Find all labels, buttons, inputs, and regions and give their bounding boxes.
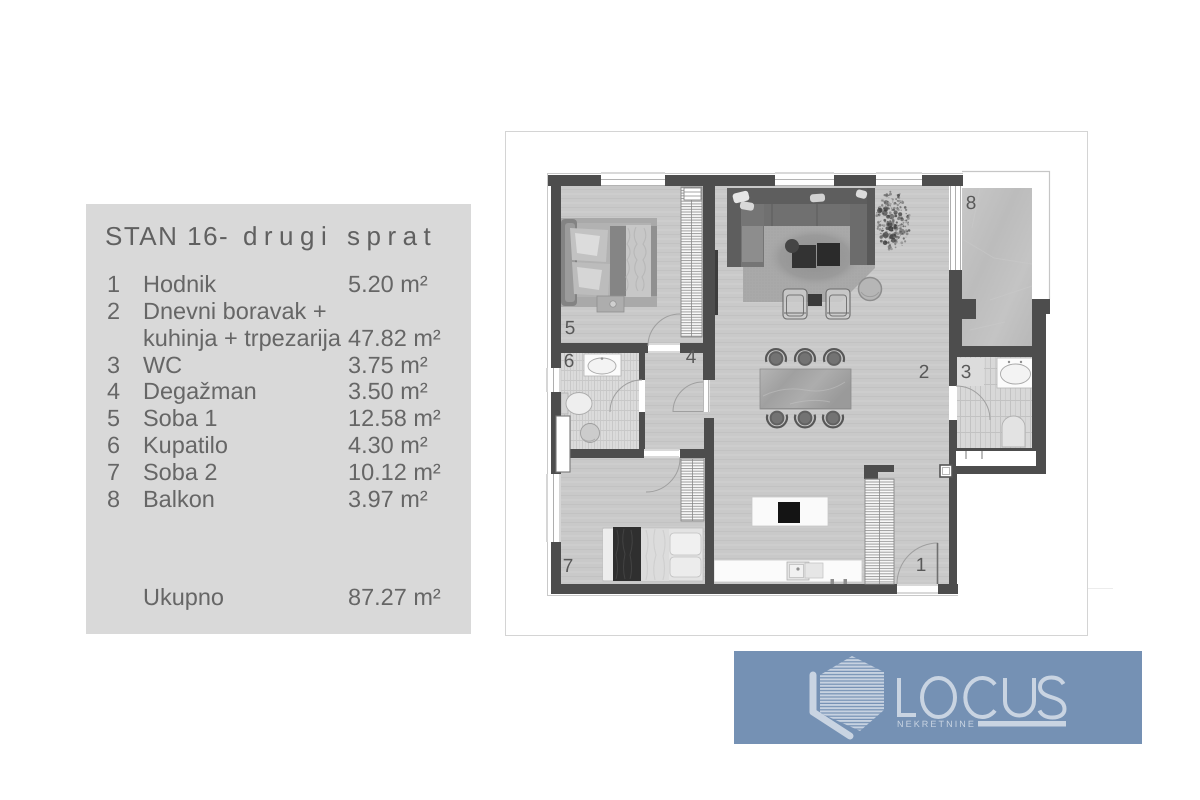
svg-text:7: 7: [563, 556, 574, 577]
svg-text:5: 5: [565, 318, 576, 339]
svg-text:1: 1: [916, 555, 927, 576]
svg-text:4: 4: [686, 347, 697, 368]
svg-text:8: 8: [966, 193, 977, 214]
svg-text:3: 3: [961, 362, 972, 383]
svg-text:NEKRETNINE: NEKRETNINE: [897, 719, 976, 729]
svg-text:2: 2: [919, 362, 930, 383]
svg-text:6: 6: [564, 351, 575, 372]
